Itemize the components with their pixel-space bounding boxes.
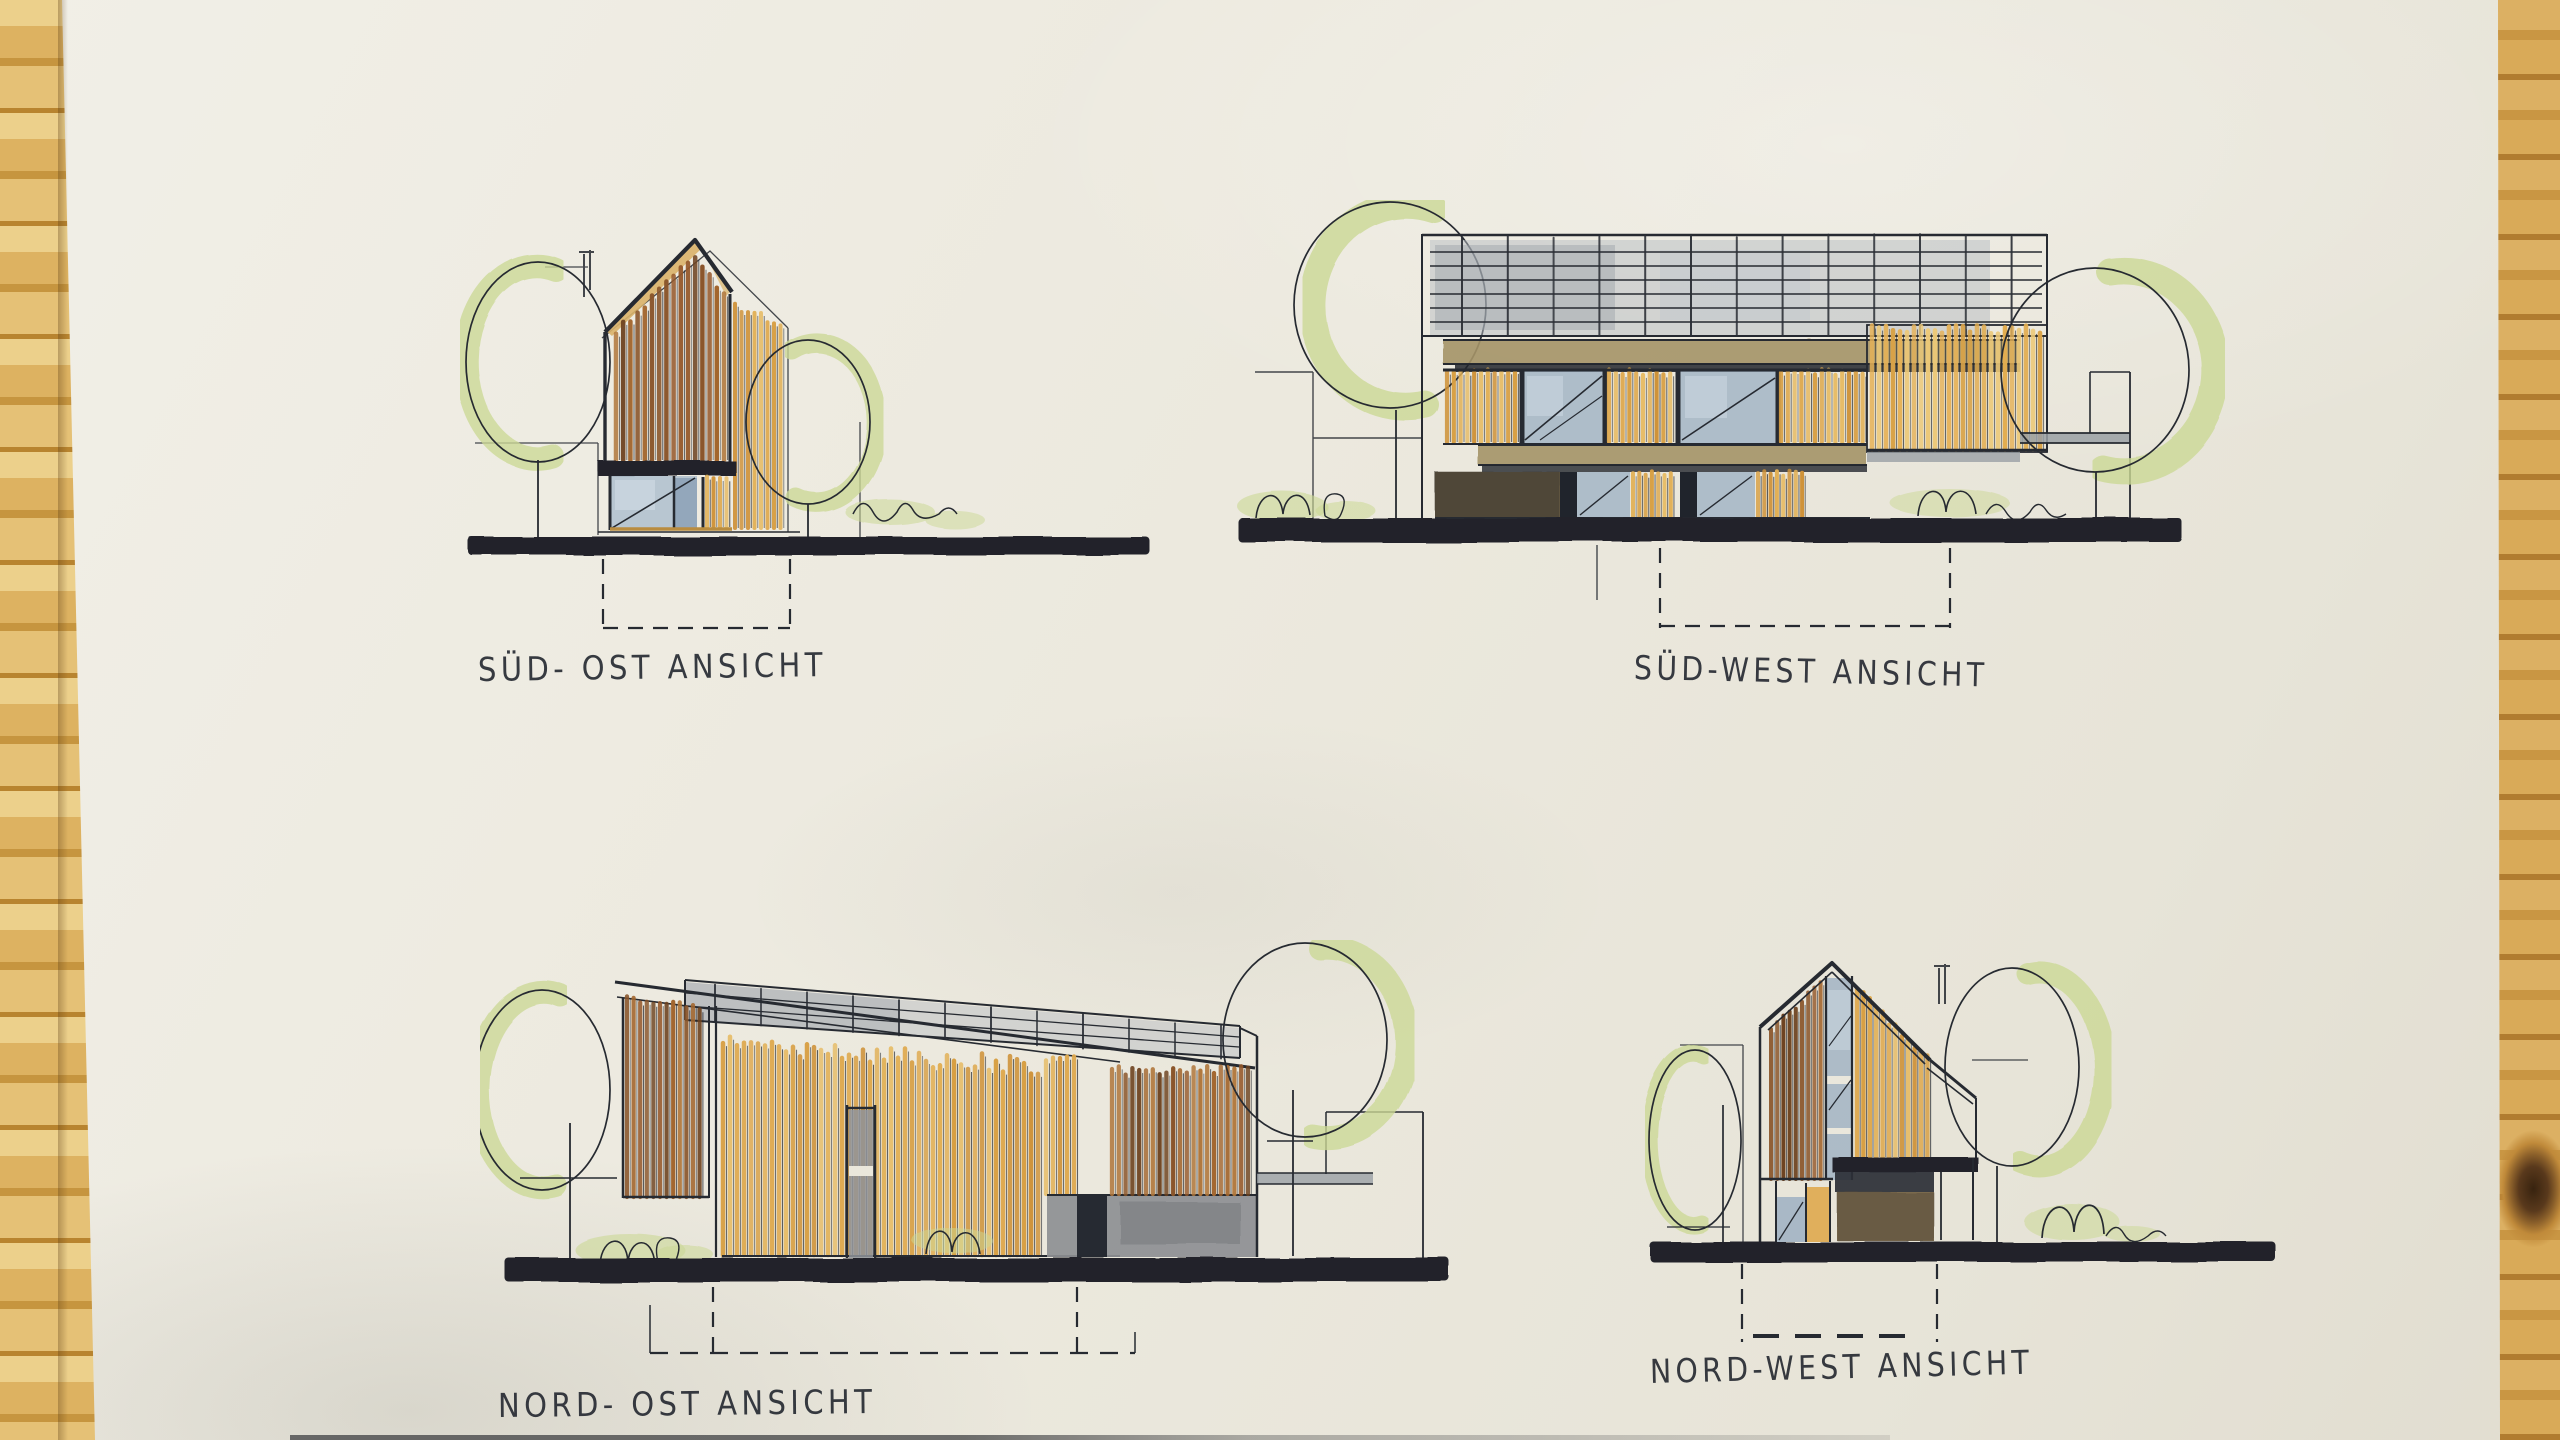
tree [480, 990, 617, 1270]
roof-railing [685, 980, 1240, 1059]
elevation-drawing-nord-ost [480, 940, 1520, 1370]
photo-edge-shadow [290, 1435, 1890, 1440]
tree [1945, 968, 2105, 1242]
ground-line [1650, 1242, 2276, 1262]
photo-of-architectural-sketch: { "sheet": { "drawings": [ { "id": "sued… [0, 0, 2560, 1440]
shrubs [2024, 1204, 2166, 1242]
house [1760, 963, 1978, 1246]
tree [466, 262, 610, 538]
elevation-drawing-nord-west [1640, 950, 2360, 1350]
ground-line [468, 537, 1150, 555]
shrubs [845, 499, 985, 529]
elevation-drawing-sued-ost [460, 210, 1160, 660]
ground-line [505, 1258, 1450, 1282]
paper-edge-shadow [58, 0, 68, 1440]
measurement-lines [1742, 1264, 1937, 1342]
caption-nord-ost-ansicht: NORD- OST ANSICHT [498, 1382, 877, 1425]
ground-line [1238, 518, 2182, 542]
measurement-lines [603, 559, 790, 630]
roof-railing [1422, 234, 2047, 336]
tree [1649, 1050, 1741, 1246]
measurement-lines [650, 1287, 1135, 1353]
wood-knot [2490, 1130, 2560, 1270]
measurement-lines [1660, 548, 1950, 628]
caption-sued-ost-ansicht: SÜD- OST ANSICHT [478, 645, 827, 689]
elevation-drawing-sued-west [1230, 200, 2370, 670]
house [598, 240, 800, 532]
caption-sued-west-ansicht: SÜD-WEST ANSICHT [1634, 648, 1989, 694]
